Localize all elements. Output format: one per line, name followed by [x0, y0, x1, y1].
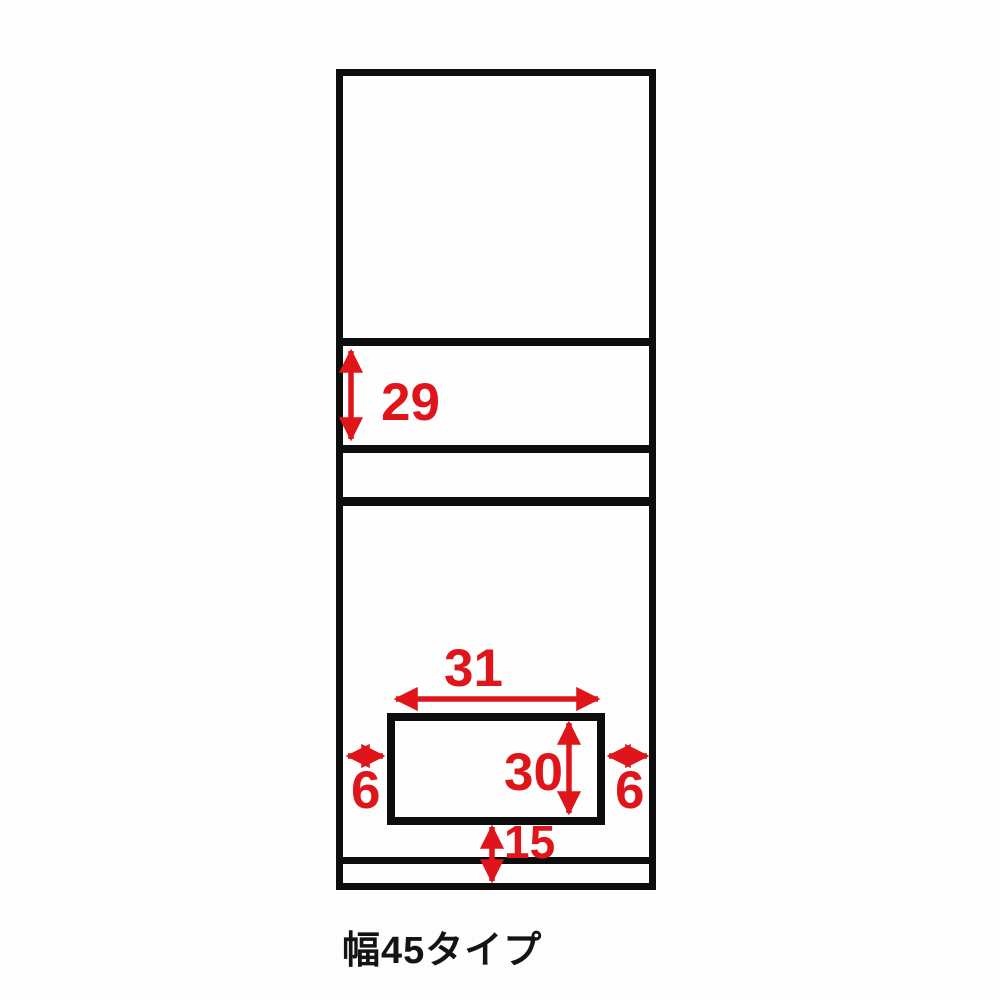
dimension-diagram: 29 31 30 6 6 15 幅45タイプ — [0, 0, 1000, 1000]
opening-rect — [387, 713, 605, 825]
divider-line-top-section — [343, 338, 649, 346]
divider-line-slide-shelf — [343, 497, 649, 506]
dim-label-opening-width: 31 — [444, 642, 503, 695]
diagram-caption: 幅45タイプ — [342, 919, 542, 974]
dim-label-bottom-clearance: 15 — [504, 819, 555, 865]
dim-label-opening-height: 30 — [504, 746, 563, 799]
divider-line-shelf-bottom — [343, 445, 649, 453]
dim-label-left-margin: 6 — [351, 764, 380, 817]
divider-line-base — [343, 857, 649, 864]
dim-label-right-margin: 6 — [615, 764, 644, 817]
dim-label-shelf-section-height: 29 — [381, 376, 440, 429]
